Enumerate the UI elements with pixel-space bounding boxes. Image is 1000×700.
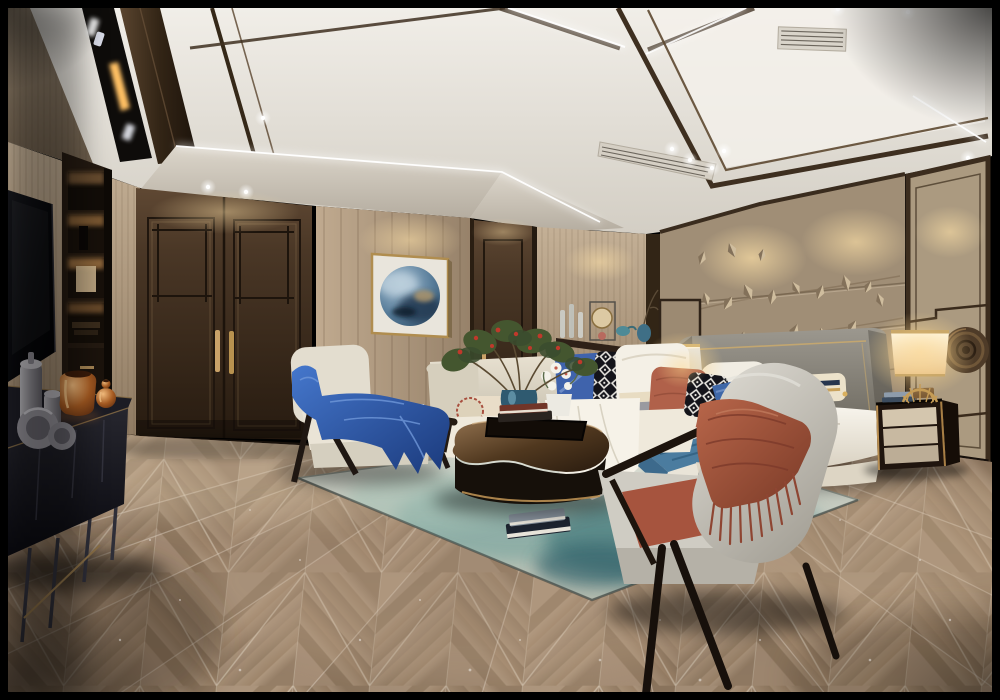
entry-doors [136, 188, 312, 440]
artwork [372, 254, 452, 338]
left-vignette [8, 8, 82, 692]
door-handle [215, 330, 220, 372]
room-scene [0, 0, 1000, 700]
door-handle [229, 331, 234, 374]
drawers [882, 407, 939, 464]
rendered-room-photo [0, 0, 1000, 700]
table-books [497, 403, 552, 423]
